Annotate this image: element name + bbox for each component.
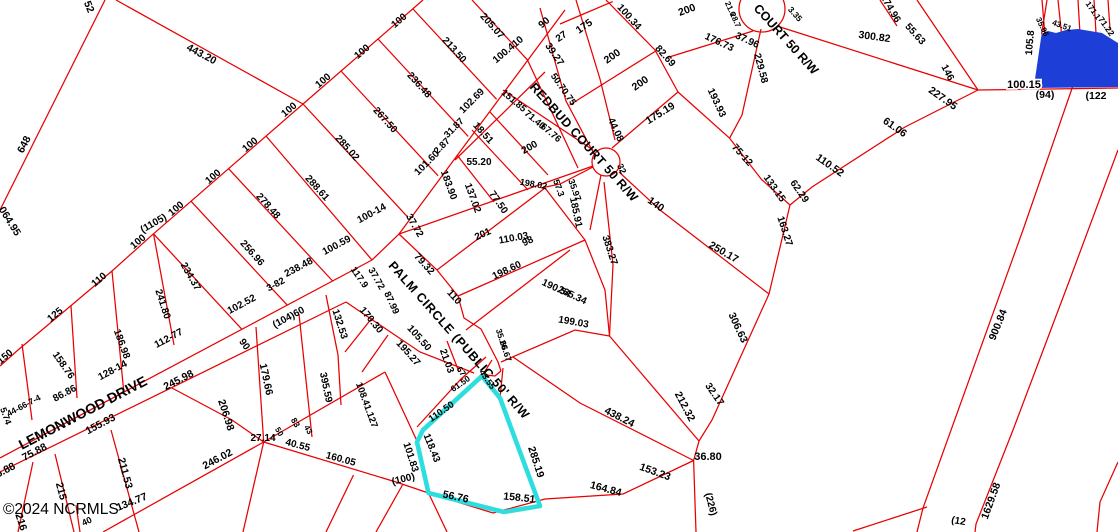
svg-text:100.15: 100.15 — [1007, 79, 1041, 91]
svg-text:36.80: 36.80 — [694, 451, 722, 463]
svg-text:55.20: 55.20 — [466, 157, 491, 168]
svg-text:(122: (122 — [1085, 90, 1106, 102]
svg-text:105.8: 105.8 — [1024, 29, 1037, 55]
svg-text:©2024 NCRMLS: ©2024 NCRMLS — [3, 501, 119, 518]
svg-text:27.14: 27.14 — [250, 433, 275, 444]
